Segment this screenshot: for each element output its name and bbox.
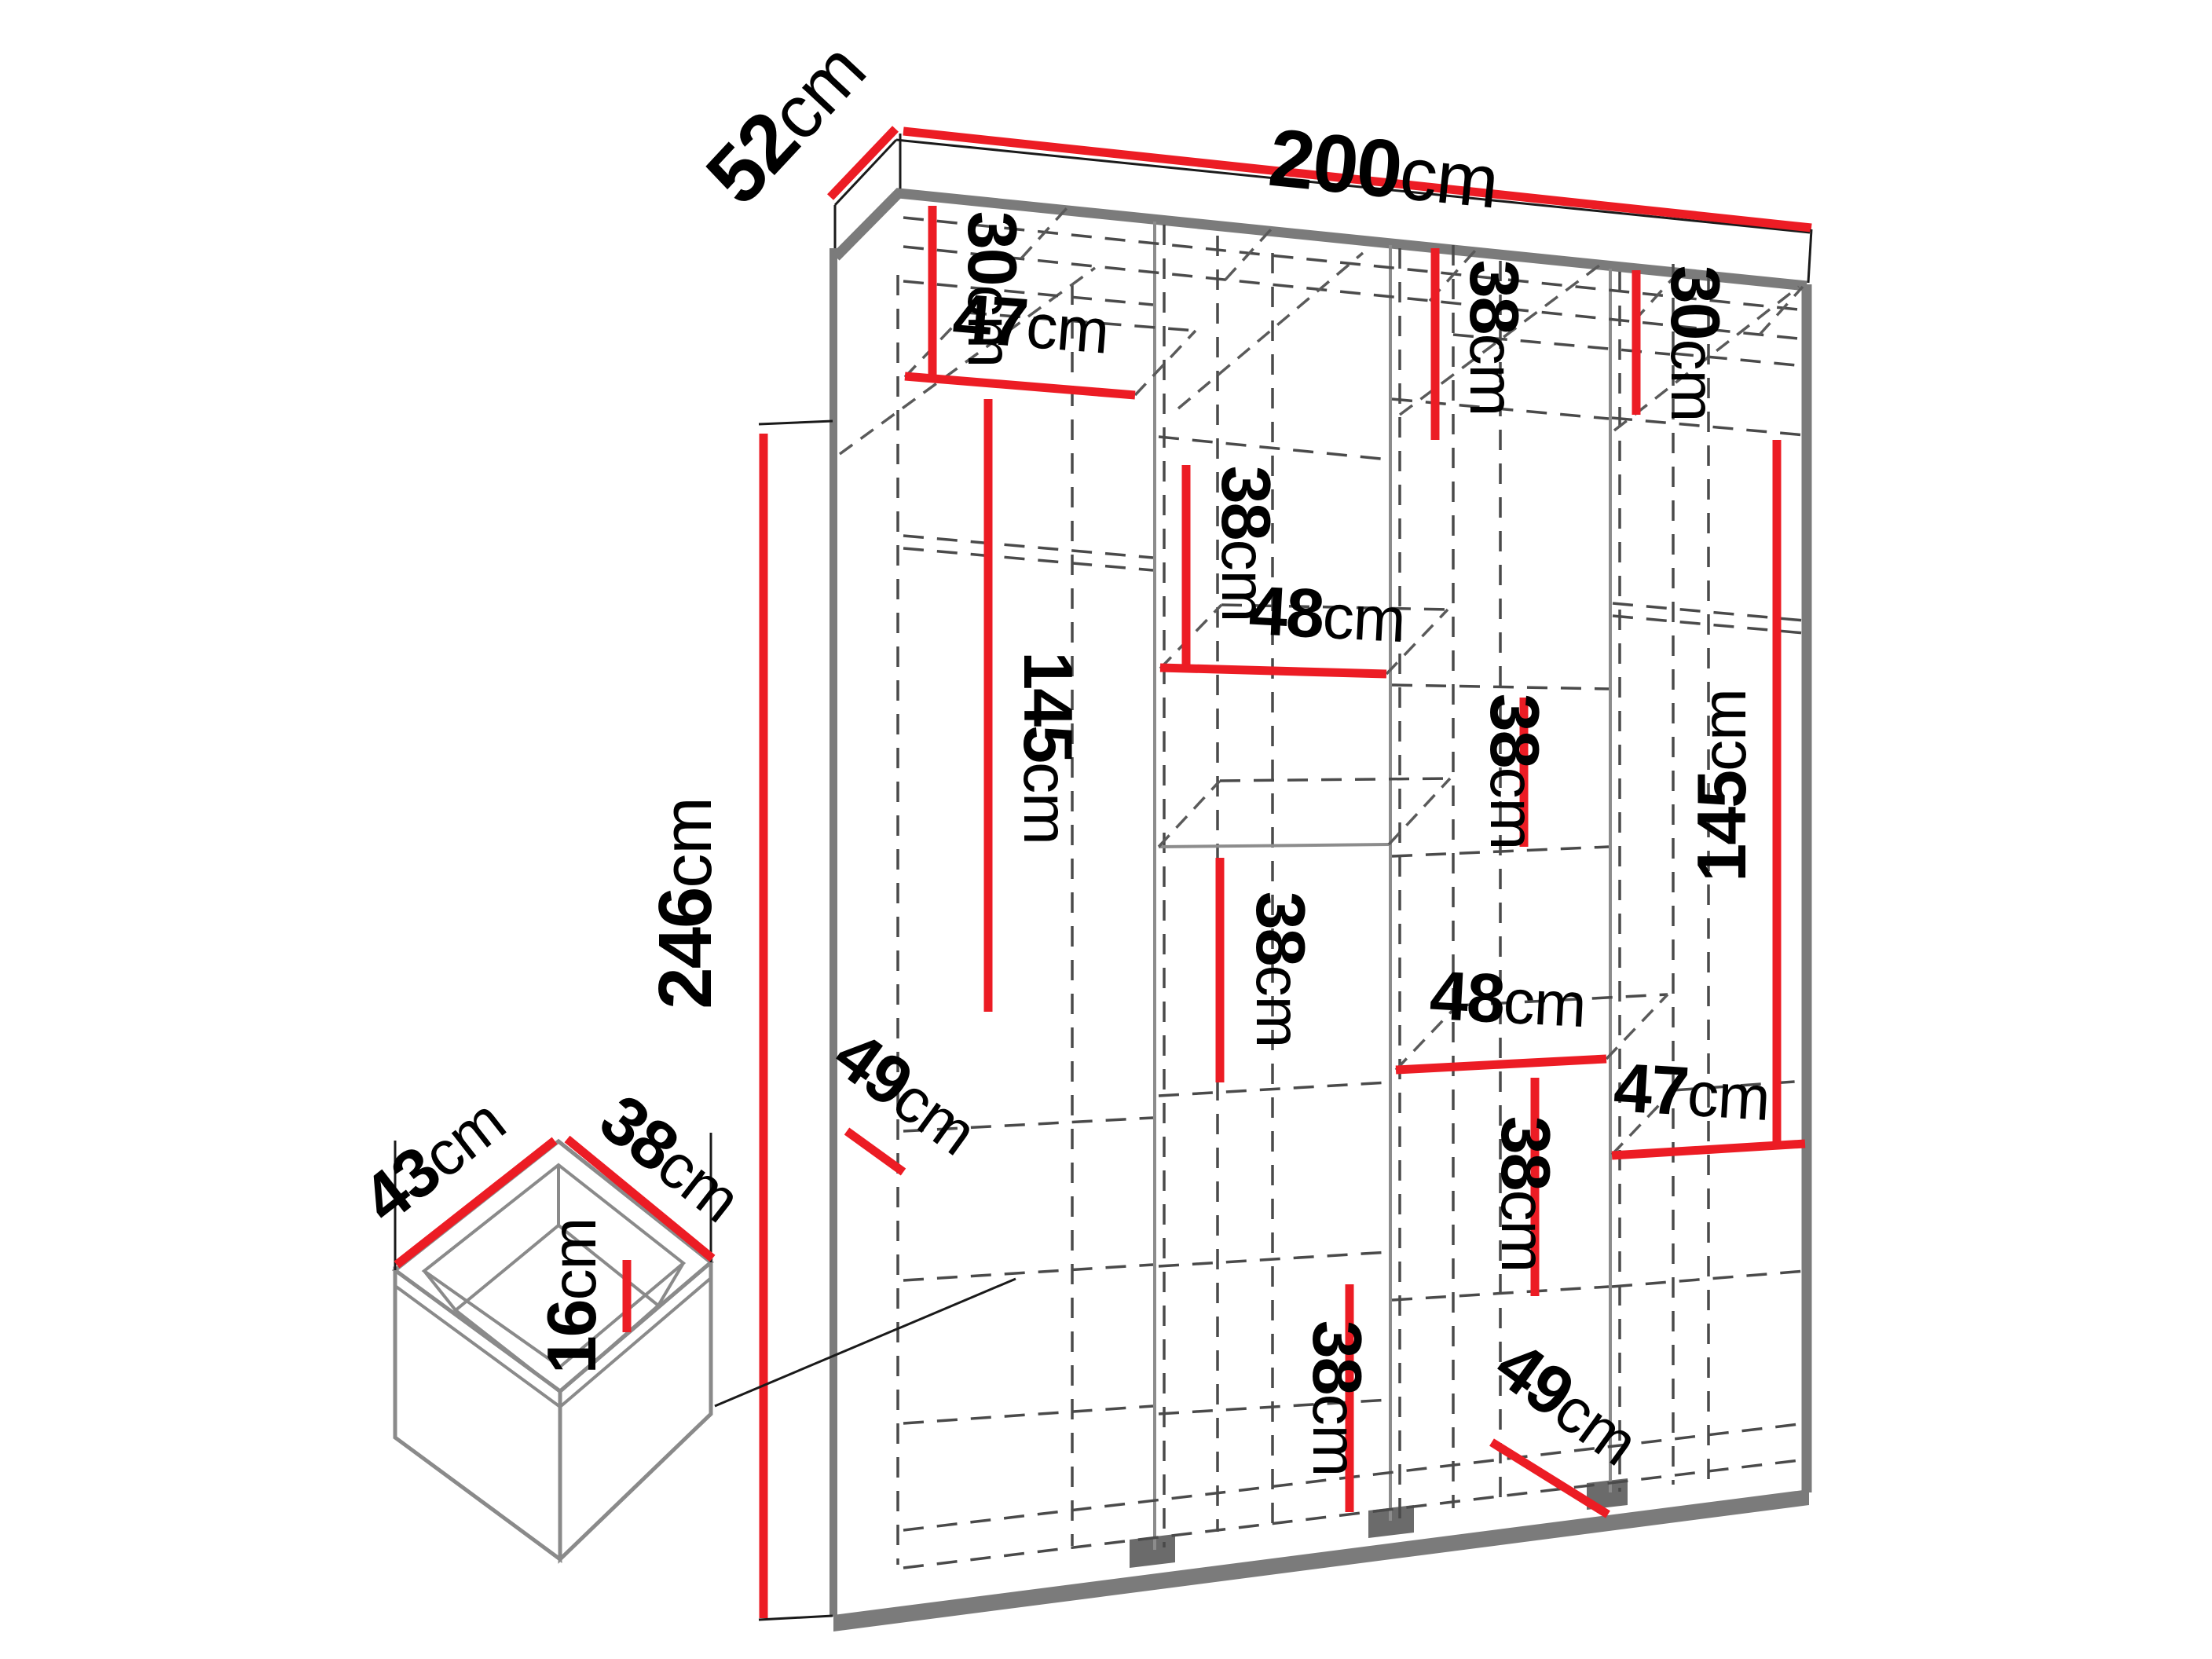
svg-text:38cm: 38cm <box>1487 1116 1565 1273</box>
svg-text:48cm: 48cm <box>1428 956 1588 1042</box>
dim-col2-middle: 38cm <box>1220 858 1320 1082</box>
svg-text:38cm: 38cm <box>1298 1320 1376 1477</box>
svg-text:47cm: 47cm <box>950 278 1112 368</box>
dim-col4-top: 30cm <box>1636 266 1734 422</box>
hanging-rail <box>903 548 1153 570</box>
svg-text:47cm: 47cm <box>1612 1048 1772 1135</box>
drawer-diagram: 43cm 38cm 16cm <box>348 1079 757 1559</box>
svg-text:38cm: 38cm <box>1242 892 1320 1048</box>
svg-text:38cm: 38cm <box>1476 694 1554 850</box>
hanging-rail <box>903 536 1153 558</box>
svg-text:145cm: 145cm <box>1009 651 1087 844</box>
dim-overall-width: 200cm <box>900 112 1811 283</box>
svg-text:38cm: 38cm <box>1456 260 1533 416</box>
svg-text:48cm: 48cm <box>1247 571 1407 657</box>
col2-fixed-shelf <box>1159 844 1389 847</box>
dim-label-depth: 52cm <box>689 24 882 222</box>
dimension-line <box>830 129 895 197</box>
dim-label-height: 246cm <box>643 797 727 1009</box>
dim-col2-shelf: 48cm <box>1160 571 1407 674</box>
dim-col1-shelf: 47cm <box>905 278 1135 395</box>
dim-col2-lower: 38cm <box>1298 1284 1376 1512</box>
svg-text:30cm: 30cm <box>1657 266 1734 422</box>
dim-overall-depth: 52cm <box>689 24 895 222</box>
dim-col1-bottom-depth: 49cm <box>821 1015 993 1172</box>
dim-col3-lower: 38cm <box>1487 1078 1565 1296</box>
diagram-page: 200cm 52cm 246cm 30cm 47cm 145cm 49cm 38… <box>0 0 2212 1659</box>
base-band <box>833 1489 1809 1632</box>
svg-text:49cm: 49cm <box>821 1015 993 1170</box>
wardrobe-dimension-diagram: 200cm 52cm 246cm 30cm 47cm 145cm 49cm 38… <box>0 0 2212 1659</box>
dim-col3-bottom-depth: 49cm <box>1482 1325 1654 1514</box>
top-left-depth-edge <box>835 140 896 205</box>
svg-text:145cm: 145cm <box>1683 689 1760 881</box>
dim-col4-hanging: 145cm <box>1683 440 1777 1147</box>
dim-col3-upper: 38cm <box>1476 694 1554 850</box>
svg-text:16cm: 16cm <box>533 1218 610 1375</box>
dim-label-width: 200cm <box>1265 112 1502 226</box>
